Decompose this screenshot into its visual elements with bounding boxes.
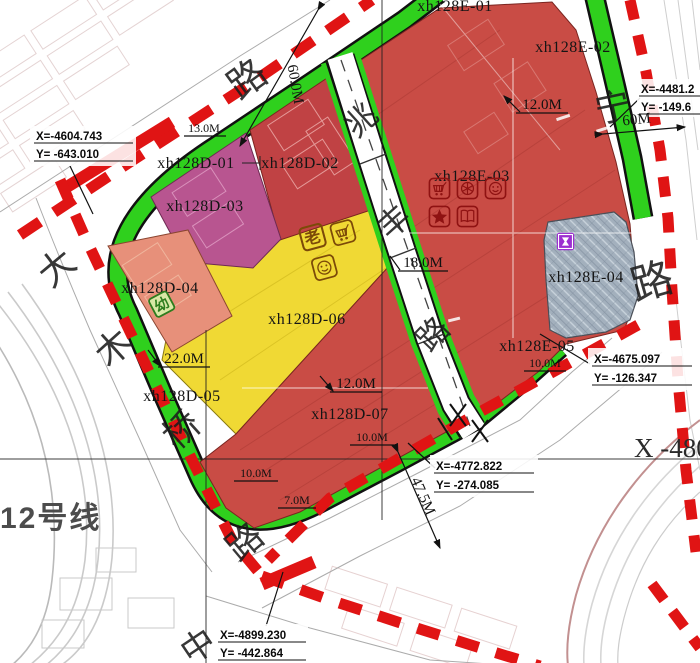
zone-label-e04: xh128E-04 xyxy=(548,269,624,286)
zone-label-d03: xh128D-03 xyxy=(166,198,243,215)
dim-22m: 22.0M xyxy=(164,351,204,367)
dim-7m: 7.0M xyxy=(284,493,310,507)
zone-label-d01: xh128D-01 xyxy=(157,155,234,172)
coordinate-x-value: X=-4772.822 xyxy=(436,461,502,473)
dim-10m-b: 10.0M xyxy=(356,430,388,444)
metro-line-12-label: 12号线 xyxy=(0,502,101,535)
coordinate-x-value: X=-4675.097 xyxy=(594,354,660,366)
zoning-map-screenshot: 老 幼 xyxy=(0,0,700,663)
dim-13m: 13.0M xyxy=(188,121,220,135)
coordinate-y-value: Y= -442.864 xyxy=(220,648,284,660)
dim-12m-mid: 12.0M xyxy=(336,376,376,392)
dim-18m: 18.0M xyxy=(403,255,443,271)
dim-10m-c: 10.0M xyxy=(240,466,272,480)
coordinate-x-value: X=-4604.743 xyxy=(36,131,102,143)
coordinate-y-value: Y= -126.347 xyxy=(594,373,657,385)
zone-label-e02: xh128E-02 xyxy=(535,39,611,56)
coordinate-y-value: Y= -274.085 xyxy=(436,480,500,492)
dim-12m-top: 12.0M xyxy=(522,97,562,113)
zone-label-d05: xh128D-05 xyxy=(143,388,220,405)
left-road-char-1: 大 xyxy=(30,241,83,295)
zone-label-e05: xh128E-05 xyxy=(499,338,575,355)
coordinate-x-value: X=-4899.230 xyxy=(220,630,286,642)
zone-label-d07: xh128D-07 xyxy=(311,406,388,423)
substation-hourglass-icon xyxy=(557,233,574,250)
zone-label-e01: xh128E-01 xyxy=(417,0,493,15)
coordinate-y-value: Y= -643.010 xyxy=(36,149,99,161)
zone-label-d06: xh128D-06 xyxy=(268,311,345,328)
coordinate-x-value: X=-4481.2 xyxy=(641,84,694,96)
grid-x-label: X -480 xyxy=(634,433,700,463)
dim-10m-a: 10.0M xyxy=(529,356,561,370)
background-parcels-bottom xyxy=(315,566,517,663)
coordinate-callout-5: X=-4899.230 Y= -442.864 xyxy=(214,572,308,662)
dim-right-road-width: 60M xyxy=(622,111,652,130)
zoning-map: 老 幼 xyxy=(0,0,700,663)
zone-label-d02: xh128D-02 xyxy=(261,155,338,172)
